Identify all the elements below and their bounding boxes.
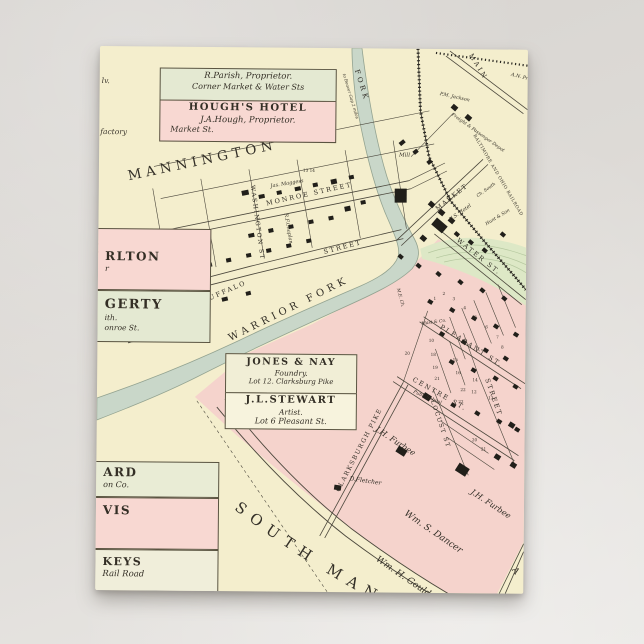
building-footprint: [241, 190, 249, 196]
lot-number: 10: [429, 338, 435, 343]
stewart-info-box: J.L.STEWART Artist. Lot 6 Pleasant St.: [225, 392, 357, 430]
ard-line1: on Co.: [103, 480, 218, 491]
building-footprint: [266, 248, 272, 253]
building-footprint: [312, 182, 318, 187]
hough-hotel-info-box: HOUGH'S HOTEL J.A.Hough, Proprietor. Mar…: [159, 100, 336, 144]
lot-number: 20: [405, 351, 411, 356]
hagerty-line2: onroe St.: [105, 323, 210, 333]
edge-text-1: lv.: [102, 76, 110, 85]
building-footprint: [451, 104, 459, 112]
hagerty-info-box: GERTY ith. onroe St.: [95, 290, 211, 343]
owner-an-prich: A.N. Prich.: [509, 71, 528, 84]
building-footprint: [395, 189, 407, 203]
lot-number: 22: [460, 387, 466, 392]
lot-number: 21: [481, 446, 487, 451]
desk-surface: MANNINGTON FORK to Beaver Gap 2 miles MA…: [0, 0, 644, 644]
lot-number: 12: [471, 389, 477, 394]
carlton-line1: r: [105, 264, 210, 275]
building-footprint: [426, 159, 432, 165]
building-footprint: [276, 190, 282, 195]
map-postcard: MANNINGTON FORK to Beaver Gap 2 miles MA…: [95, 46, 528, 594]
lot-number: 15: [453, 357, 459, 362]
church-south-label: Ch. South: [476, 182, 497, 199]
building-footprint: [328, 216, 334, 221]
building-footprint: [226, 258, 232, 263]
stewart-title: J.L.STEWART: [226, 394, 356, 408]
vis-info-box: VIS: [95, 497, 219, 550]
building-footprint: [221, 296, 228, 301]
building-footprint: [246, 253, 252, 258]
parish-info-box: R.Parish, Proprietor. Corner Market & Wa…: [160, 68, 337, 103]
building-footprint: [399, 139, 406, 146]
owner-pm-jackson: P.M. Jackson: [438, 91, 470, 104]
lot-number: 13: [488, 395, 494, 400]
us-hotel-label: U.S. Hotel: [448, 203, 473, 223]
edge-text-2: factory: [100, 127, 127, 136]
ard-info-box: ARD on Co.: [95, 461, 219, 498]
lot-nums-13-14: 13 14: [303, 168, 315, 173]
owner-rf-chaplan: R.F.Chaplan: [282, 212, 293, 244]
jones-nay-info-box: JONES & NAY Foundry. Lot 12. Clarksburg …: [225, 353, 357, 394]
vis-title: VIS: [103, 503, 218, 519]
hunt-son-label: Hunt & Son: [484, 207, 512, 227]
building-footprint: [419, 234, 427, 242]
building-footprint: [248, 233, 255, 238]
lot-number: 18: [431, 352, 437, 357]
building-footprint: [500, 231, 506, 237]
lot-number: 4: [463, 305, 466, 310]
depot-label: Freight & Passenger Depot: [449, 111, 505, 153]
lot-number: 7: [496, 334, 499, 339]
building-footprint: [360, 200, 366, 205]
building-footprint: [308, 219, 314, 224]
building-footprint: [245, 291, 251, 296]
building-footprint: [294, 186, 301, 191]
building-footprint: [306, 238, 312, 243]
lot-number: 2: [442, 291, 445, 296]
building-footprint: [258, 194, 265, 199]
parish-line2: Corner Market & Water Sts: [161, 81, 336, 93]
lot-number: 16: [455, 370, 461, 375]
keys-line1: Rail Road: [102, 569, 217, 581]
lot-number: 6: [485, 324, 488, 329]
lot-number: 5: [474, 314, 477, 319]
lot-number: 20: [472, 437, 478, 442]
hagerty-title: GERTY: [105, 297, 210, 314]
lot-number: 1: [433, 296, 436, 301]
street-label-street-upper: STREET: [323, 238, 363, 256]
hough-line2: Market St.: [160, 125, 335, 137]
jones-line2: Lot 12. Clarksburg Pike: [226, 377, 356, 387]
lot-number: 22: [458, 399, 464, 404]
carlton-info-box: RLTON r: [95, 228, 211, 291]
town-title: MANNINGTON: [126, 137, 278, 184]
building-footprint: [268, 228, 274, 233]
mill-label: Mill: [398, 153, 410, 159]
ard-title: ARD: [103, 465, 218, 481]
building-footprint: [344, 206, 351, 212]
lot-number: 21: [434, 376, 440, 381]
building-footprint: [431, 218, 447, 234]
lot-number: 14: [472, 377, 478, 382]
stewart-line2: Lot 6 Pleasant St.: [226, 416, 356, 427]
keys-info-box: KEYS Rail Road: [95, 549, 218, 594]
lot-number: 19: [433, 365, 439, 370]
lot-number: 8: [501, 345, 504, 350]
lot-number: 3: [452, 296, 455, 301]
jones-title: JONES & NAY: [226, 356, 356, 369]
keys-title: KEYS: [102, 555, 217, 570]
carlton-title: RLTON: [105, 249, 210, 265]
